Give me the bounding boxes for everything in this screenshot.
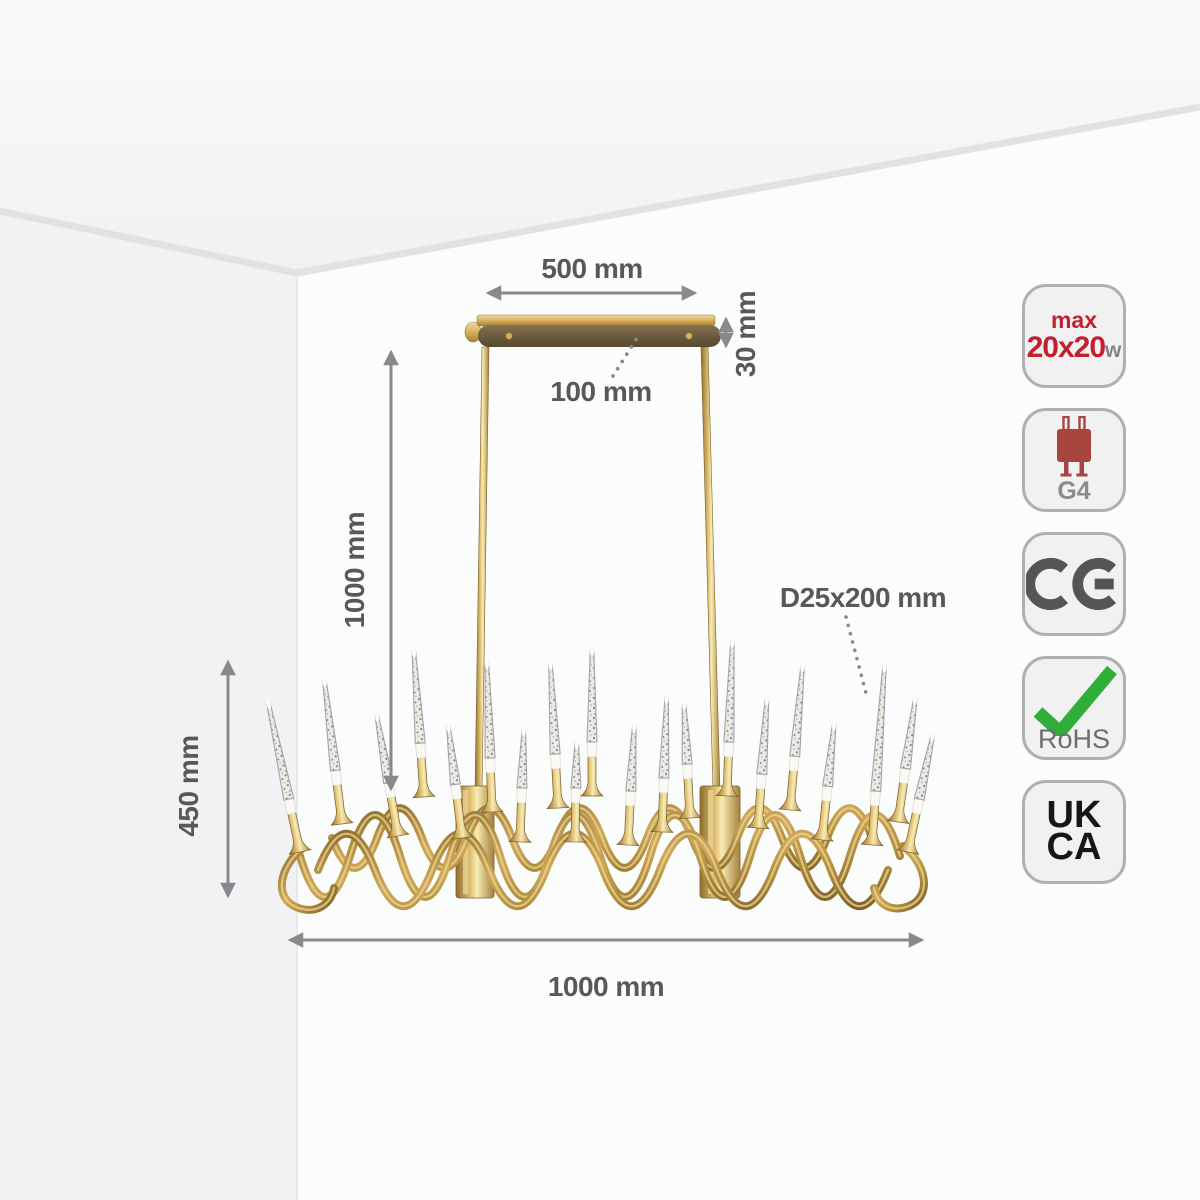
max-wattage-badge: max 20x20w xyxy=(1022,284,1126,388)
label-fixture-width: 1000 mm xyxy=(548,971,664,1002)
left-wall xyxy=(0,211,297,1200)
label-bulb-tube: D25x200 mm xyxy=(780,582,946,613)
label-canopy-width: 500 mm xyxy=(541,253,642,284)
spec-badge-column: max 20x20w G4 RoHS UK CA xyxy=(1022,284,1126,904)
label-fixture-height: 450 mm xyxy=(173,735,204,836)
lamp-base-badge: G4 xyxy=(1022,408,1126,512)
label-canopy-depth: 100 mm xyxy=(550,376,651,407)
ce-mark-icon xyxy=(1026,553,1122,615)
label-suspension-height: 1000 mm xyxy=(339,512,370,628)
rohs-badge: RoHS xyxy=(1022,656,1126,760)
ukca-badge: UK CA xyxy=(1022,780,1126,884)
rohs-label: RoHS xyxy=(1038,726,1110,753)
max-wattage-unit: w xyxy=(1105,339,1121,362)
lamp-base-label: G4 xyxy=(1057,479,1090,504)
max-wattage-value: 20x20w xyxy=(1027,332,1122,364)
product-dimension-page: { "dimensions": { "canopy_width": "500 m… xyxy=(0,0,1200,1200)
spike-tip xyxy=(590,646,594,656)
ceiling-canopy xyxy=(465,315,721,347)
dimension-diagram-scene: 500 mm 30 mm 100 mm 1000 mm 450 mm 1000 … xyxy=(0,0,1200,1200)
ce-certification-badge xyxy=(1022,532,1126,636)
label-canopy-thickness: 30 mm xyxy=(730,291,761,377)
ukca-mark-label: UK CA xyxy=(1047,800,1102,864)
max-wattage-prefix: max xyxy=(1051,308,1097,332)
g4-bulb-icon xyxy=(1044,416,1104,478)
